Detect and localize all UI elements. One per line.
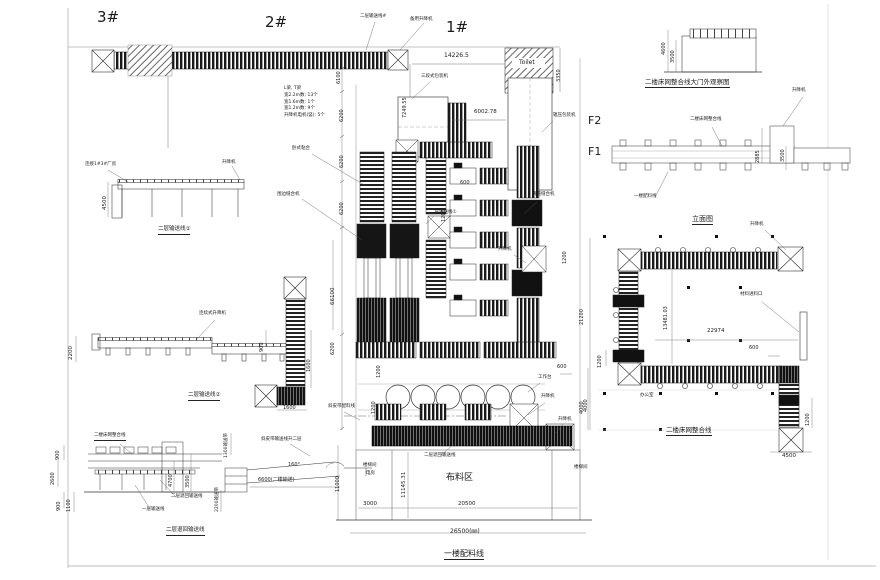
dim-3500-gate: 3500 (671, 50, 676, 63)
title-l2-conveyor-1: 二层输送线① (158, 227, 190, 235)
dim-1300-belt: 1300输送带 (225, 433, 230, 458)
fabric-area-label: 布料区 (446, 474, 473, 483)
dim-4000-plan2: 4000 (580, 401, 585, 414)
left-elevation-1 (108, 166, 244, 218)
dim-13481: 13481.03 (664, 306, 669, 330)
dim-6100: 6100 (337, 71, 342, 84)
dim-66100: 66100 (331, 288, 337, 306)
machine-rows (450, 163, 508, 316)
dim-1600-v: 1600 (307, 359, 312, 372)
dim-2200-belt: 2200输送带 (216, 487, 221, 512)
dim-600-plan2: 600 (749, 346, 759, 351)
elevation-l1-label: 一楼配料线 (634, 195, 657, 200)
cad-linework (0, 0, 880, 580)
beam-note-block: L梁, T梁 宽2.2m数: 13个 宽1.6m数: 1个 宽1.2m数: 9个… (284, 86, 325, 120)
title-ground-floor-line: 一楼配料线 (444, 550, 484, 560)
dim-1100: 1100 (67, 499, 72, 512)
dim-7249: 7249.55 (403, 97, 408, 118)
elevation-l2-label: 二楼床网整合线 (690, 118, 722, 123)
building-3-marker: 3# (97, 10, 119, 25)
note-line: 宽1.2m数: 9个 (284, 106, 325, 113)
dim-3350: 3350 (557, 69, 562, 82)
right-elevation (612, 97, 850, 197)
section-l1-line-label: 一层输送线 (142, 508, 165, 513)
section-return-line-label: 二层退回输送线 (171, 495, 203, 500)
gate-view (664, 29, 762, 72)
top-conveyor (68, 22, 560, 148)
dim-600b: 600 (557, 365, 567, 370)
plan2-lift-label: 升降机 (750, 223, 764, 228)
dim-1200c: 1200 (377, 365, 382, 378)
title-second-floor-line: 二楼床网整合线 (666, 427, 712, 436)
note-line: L梁, T梁 (284, 86, 325, 93)
right-plan (590, 230, 812, 452)
note-line: 宽2.2m数: 13个 (284, 93, 325, 100)
dim-4500-left: 4500 (103, 196, 109, 210)
workbench-label: 工作台 (538, 376, 552, 381)
dim-900-step: 900 (260, 342, 265, 352)
leader-lines (302, 154, 537, 240)
link-buildings-label: 连接1#3#厂房 (85, 163, 116, 168)
material-inlet-label: 材料进料口 (740, 293, 763, 298)
dim-900b: 900 (57, 501, 62, 511)
dim-1200d: 1200 (372, 401, 377, 414)
title-elevation-view: 立面图 (692, 216, 713, 225)
ramp-angle: 160° (288, 463, 300, 468)
dim-6002: 6002.78 (474, 110, 497, 116)
slide-sewing-label: 滑道缝合机 (532, 193, 555, 198)
lift-label-3: 升降机 (558, 418, 572, 423)
dim-2200-left: 2200 (69, 346, 75, 360)
dim-900a: 900 (56, 450, 61, 460)
dim-4700: 4700 (169, 474, 174, 487)
building-2-marker: 2# (265, 15, 287, 30)
left-elevation-2 (76, 320, 290, 362)
dim-4600-gate: 4600 (662, 42, 667, 55)
stairwell-label-1: 楼梯间 (363, 464, 377, 469)
dim-3500-elev: 3500 (781, 149, 786, 162)
roll-packer-label: 辊压包装机 (553, 114, 576, 119)
horizontal-bonding-label: 卧式粘合 (292, 147, 310, 152)
dim-1200-right: 1200 (806, 413, 811, 426)
dim-1600-h: 1600 (283, 406, 296, 411)
dim-2600: 2600 (51, 472, 56, 485)
three-stage-packer-label: 三段式包装机 (421, 75, 448, 80)
office-label: 办公室 (640, 394, 654, 399)
dim-6600: 6600(二楼输送) (258, 478, 295, 483)
floor-1-marker: F1 (588, 146, 601, 157)
dim-1200-left: 1200 (598, 355, 603, 368)
dim-600a: 600 (460, 181, 470, 186)
dim-6200c: 6200 (340, 202, 345, 215)
elevation-lift-label: 升降机 (792, 89, 806, 94)
cad-drawing-sheet: 3# 2# 1# F2 F1 二层输送线# 备用升降机 L梁, T梁 宽2.2m… (0, 0, 880, 580)
dim-26500: 26500(㎜) (450, 529, 480, 535)
dim-1200b: 1200 (563, 251, 568, 264)
return-line-label: 二层退回输送线 (424, 454, 456, 459)
dim-3000: 3000 (363, 502, 377, 508)
edge-sewing-label: 围边缝合机 (277, 193, 300, 198)
top-conveyor-label: 二层输送线# (360, 15, 386, 20)
dim-6200a: 6200 (340, 109, 345, 122)
building-section (58, 442, 225, 512)
title-return-conveyor: 二层退回输送线 (166, 528, 205, 536)
dim-2885: 2885 (756, 150, 761, 163)
ramp-detail (221, 433, 372, 512)
lift-label-1: 升降机 (498, 248, 512, 253)
ramp-label: 斜皮带输送线升二层 (261, 438, 302, 443)
section-top-label: 二楼床网整合线 (94, 434, 126, 441)
dim-14226: 14226.5 (444, 53, 469, 59)
backup-lift-label: 备用升降机 (410, 18, 433, 23)
power-room-label: 电房 (366, 472, 375, 477)
floor-2-marker: F2 (588, 115, 601, 126)
stairwell-label-2: 楼梯间 (574, 466, 588, 471)
dim-20500: 20500 (458, 502, 476, 508)
elev1-lift-label: 升降机 (222, 161, 236, 166)
dim-21200: 21200 (580, 309, 585, 325)
dim-3500-section: 3500 (186, 475, 191, 488)
title-l2-conveyor-2: 二层输送线② (188, 393, 220, 401)
belt-feed-label: 斜皮带配料线 (328, 405, 355, 410)
dim-1200a: 1200 (442, 209, 447, 222)
building-1-marker: 1# (446, 20, 468, 35)
continuous-lift-label: 连续式升降机 (199, 312, 226, 317)
dim-11000: 11000 (336, 476, 341, 492)
dim-6200d: 6200 (331, 342, 336, 355)
dim-4500-plan2: 4500 (782, 454, 796, 460)
dim-6200b: 6200 (340, 155, 345, 168)
toilet-label: Toilet (519, 60, 535, 66)
title-gate-view: 二楼床网整合线大门外观察图 (645, 79, 730, 88)
dim-11145: 11145.31 (402, 472, 408, 498)
dim-22974: 22974 (707, 329, 725, 335)
lift-label-2: 升降机 (541, 395, 555, 400)
note-line: 升降机电机(竖): 5个 (284, 113, 325, 120)
